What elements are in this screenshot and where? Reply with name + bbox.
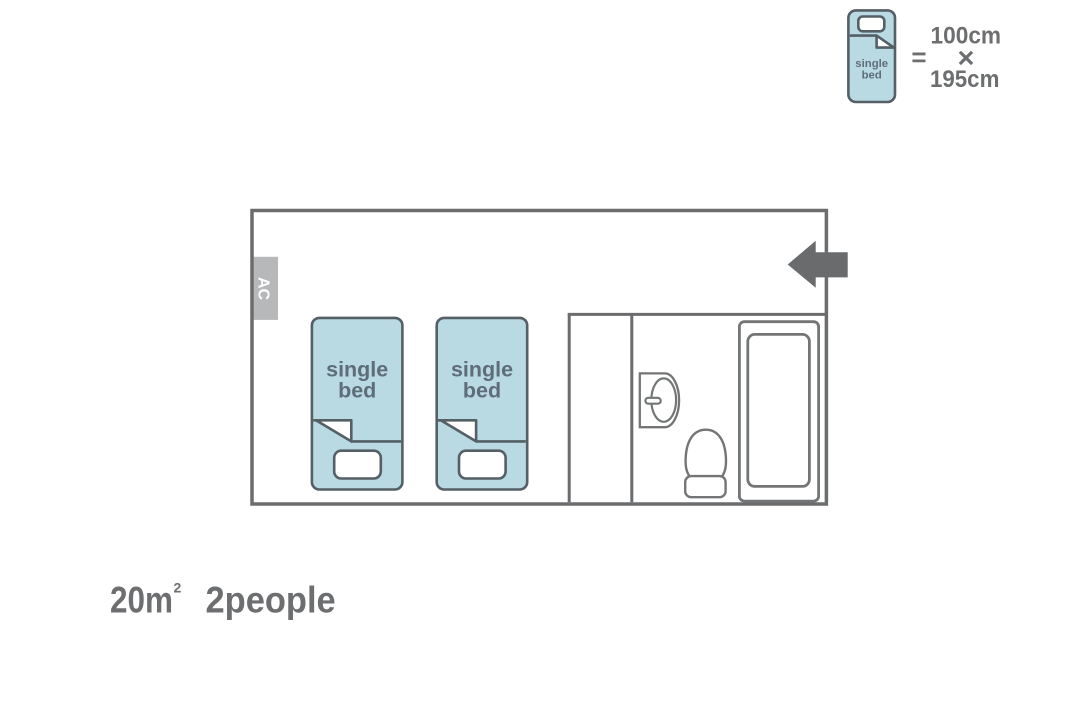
svg-text:bed: bed <box>338 379 376 403</box>
svg-text:AC: AC <box>255 277 272 301</box>
svg-text:2: 2 <box>174 580 182 596</box>
svg-text:bed: bed <box>463 379 501 403</box>
svg-text:20m: 20m <box>110 578 173 620</box>
svg-text:=: = <box>911 42 926 72</box>
svg-text:2people: 2people <box>206 578 336 620</box>
svg-text:single: single <box>326 357 388 381</box>
svg-text:195cm: 195cm <box>930 66 999 93</box>
svg-text:single: single <box>855 58 888 70</box>
svg-text:bed: bed <box>862 70 882 82</box>
svg-text:single: single <box>451 357 513 381</box>
